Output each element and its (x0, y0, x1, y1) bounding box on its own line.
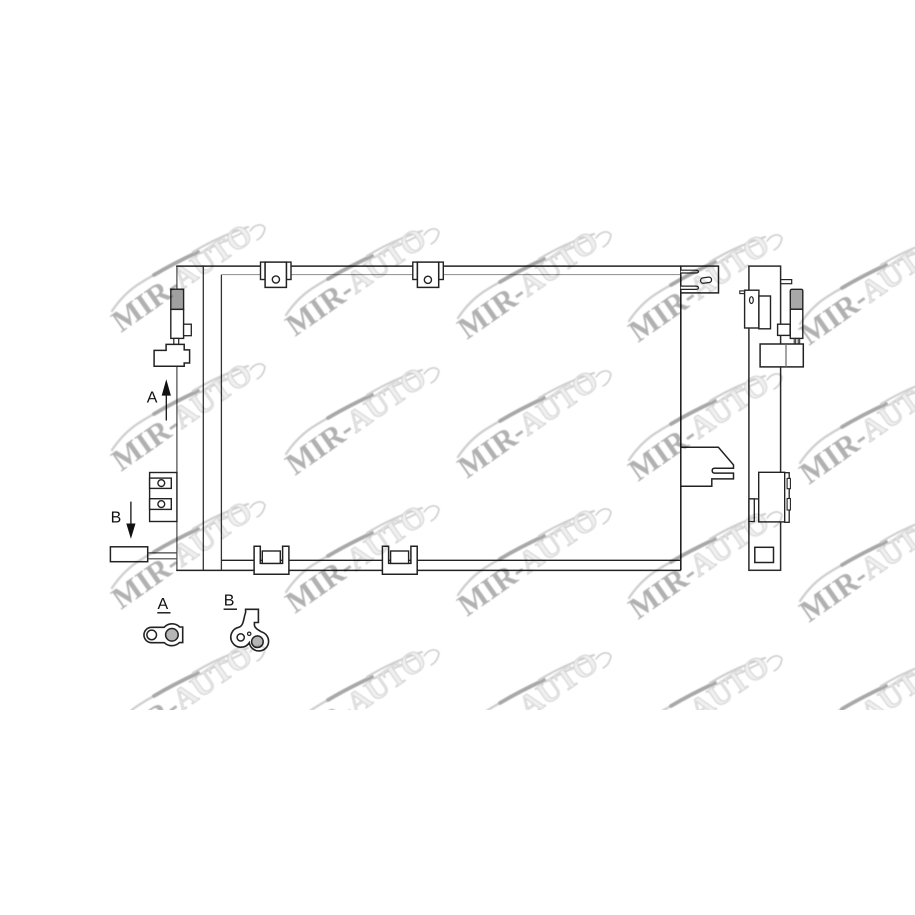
svg-text:B: B (224, 592, 235, 609)
svg-text:B: B (111, 509, 122, 526)
svg-text:A: A (158, 596, 169, 613)
svg-text:A: A (147, 389, 158, 406)
